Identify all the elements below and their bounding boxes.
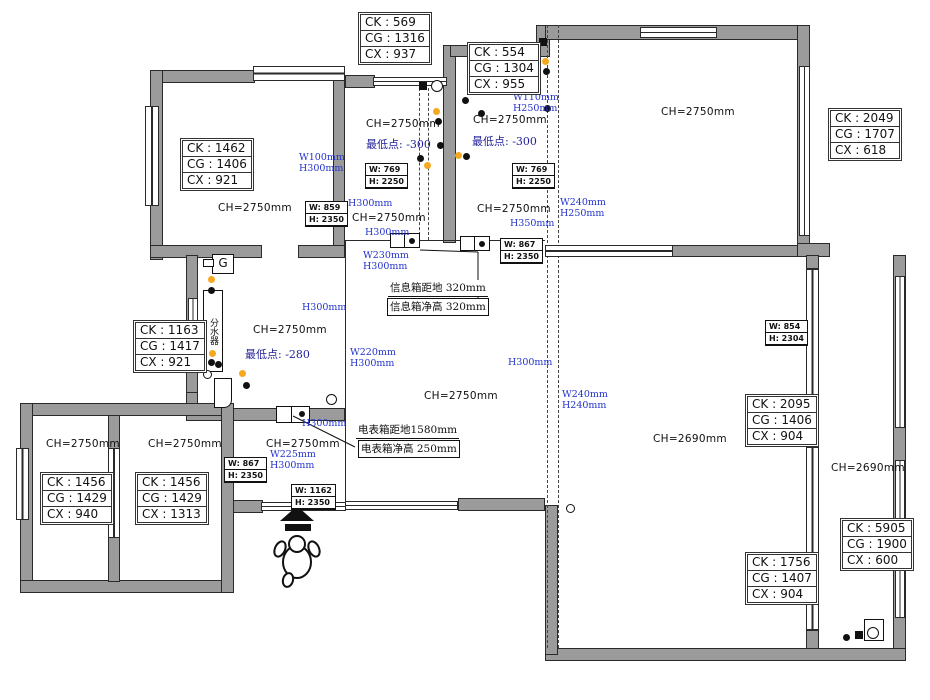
dimension-row: CK : 1462 [182, 140, 252, 157]
dimension-row: CX : 921 [182, 172, 252, 189]
opening-dimension-box: CK : 2049CG : 1707CX : 618 [828, 108, 902, 161]
spotlight-dot-orange [455, 152, 462, 159]
dimension-row: CX : 600 [842, 552, 912, 569]
wall-segment [671, 245, 810, 257]
ceiling-height-label: CH=2750mm [424, 390, 498, 402]
dimension-row: CX : 955 [469, 76, 539, 93]
dimension-row: CG : 1429 [42, 490, 112, 507]
window [640, 27, 717, 38]
dimension-row: CG : 1429 [137, 490, 207, 507]
window [545, 245, 673, 257]
dimension-row: CX : 1313 [137, 506, 207, 523]
floor-plan: 分水器 G /* ---------- data binding -------… [0, 0, 930, 700]
opening-dimension-box: CK : 5905CG : 1900CX : 600 [840, 518, 914, 571]
dimension-row: CK : 569 [360, 14, 430, 31]
dimension-row: CK : 1756 [747, 554, 817, 571]
door-size-box: W: 769H: 2250 [512, 163, 555, 189]
dimension-row: CX : 618 [830, 142, 900, 159]
spotlight-dot-black [208, 359, 215, 366]
pipe-dimension-label: W240mmH250mm [560, 197, 606, 219]
dimension-row: CK : 1456 [137, 474, 207, 491]
window [145, 106, 159, 206]
socket-square-symbol [419, 82, 427, 90]
window [345, 501, 458, 510]
window [799, 66, 810, 236]
pipe-dimension-label: H300mm [302, 302, 346, 313]
wall-segment [150, 70, 255, 83]
ceiling-height-label: CH=2750mm [253, 324, 327, 336]
opening-dimension-box: CK : 1163CG : 1417CX : 921 [133, 320, 207, 373]
spotlight-dot-orange [239, 370, 246, 377]
opening-dimension-box: CK : 1456CG : 1429CX : 1313 [135, 472, 209, 525]
opening-dimension-box: CK : 2095CG : 1406CX : 904 [745, 394, 819, 447]
wall-segment [298, 245, 345, 258]
door-size-row: H: 2350 [305, 213, 348, 226]
door-size-row: H: 2304 [765, 332, 808, 345]
door-size-box: W: 867H: 2350 [224, 457, 267, 483]
pipe-dimension-label: H300mm [348, 198, 392, 209]
pipe-dimension-label: W240mmH240mm [562, 389, 608, 411]
door-size-box: W: 854H: 2304 [765, 320, 808, 346]
dimension-row: CG : 1707 [830, 126, 900, 143]
dimension-row: CK : 1163 [135, 322, 205, 339]
circle-fixture-symbol [326, 394, 337, 405]
dimension-row: CG : 1316 [360, 30, 430, 47]
dimension-row: CX : 904 [747, 586, 817, 603]
opening-dimension-box: CK : 569CG : 1316CX : 937 [358, 12, 432, 65]
opening-dimension-box: CK : 1456CG : 1429CX : 940 [40, 472, 114, 525]
dimension-row: CK : 2049 [830, 110, 900, 127]
ceiling-height-label: CH=2690mm [831, 462, 905, 474]
dimension-row: CK : 2095 [747, 396, 817, 413]
annotation-note: 信息箱净高 320mm [387, 298, 489, 316]
door-size-row: H: 2350 [291, 496, 336, 509]
wall-segment [345, 75, 375, 88]
dimension-row: CK : 1456 [42, 474, 112, 491]
spotlight-dot-black [437, 142, 444, 149]
window [253, 66, 345, 81]
entrance-arrow-bar [285, 524, 311, 531]
annotation-note: 信息箱距地 320mm [388, 280, 488, 297]
circle-fixture-symbol [566, 504, 575, 513]
spotlight-dot-orange [424, 162, 431, 169]
ceiling-height-label: CH=2750mm [661, 106, 735, 118]
pipe-dimension-label: W220mmH300mm [350, 347, 396, 369]
spotlight-dot-black [208, 287, 215, 294]
door-size-box: W: 867H: 2350 [500, 238, 543, 264]
socket-square-symbol [855, 631, 863, 639]
door-size-row: H: 2350 [224, 469, 267, 482]
ceiling-height-label: CH=2750mm [366, 118, 440, 130]
pipe-dimension-label: W100mmH300mm [299, 152, 345, 174]
pipe-dimension-label: H350mm [510, 218, 554, 229]
dimension-row: CX : 940 [42, 506, 112, 523]
spotlight-dot-orange [208, 276, 215, 283]
ceiling-height-label: CH=2750mm [473, 114, 547, 126]
dimension-row: CG : 1407 [747, 570, 817, 587]
annotation-note: 电表箱净高 250mm [358, 440, 460, 458]
door-size-row: H: 2350 [500, 250, 543, 263]
pipe-dimension-label: H300mm [302, 418, 346, 429]
ceiling-height-label: CH=2690mm [653, 433, 727, 445]
ceiling-height-label: CH=2750mm [148, 438, 222, 450]
spotlight-dot-black [543, 68, 550, 75]
pipe-dimension-label: H300mm [508, 357, 552, 368]
person-icon [272, 536, 322, 588]
pipe-dimension-label: W230mmH300mm [363, 250, 409, 272]
ceiling-height-label: CH=2750mm [46, 438, 120, 450]
lowest-point-label: 最低点: -300 [366, 136, 431, 152]
wall-segment [233, 500, 263, 513]
dimension-row: CG : 1304 [469, 60, 539, 77]
ceiling-height-label: CH=2750mm [218, 202, 292, 214]
pipe-dimension-label: W225mmH300mm [270, 449, 316, 471]
spotlight-dot-orange [433, 108, 440, 115]
wall-segment [20, 403, 233, 416]
dimension-row: CG : 1406 [182, 156, 252, 173]
spotlight-dot-orange [542, 58, 549, 65]
opening-dimension-box: CK : 1462CG : 1406CX : 921 [180, 138, 254, 191]
annotation-note: 电表箱距地1580mm [356, 422, 459, 439]
opening-dimension-box: CK : 1756CG : 1407CX : 904 [745, 552, 819, 605]
ceiling-height-label: CH=2750mm [477, 203, 551, 215]
circle-fixture-symbol [431, 80, 443, 92]
door-size-box: W: 769H: 2250 [365, 163, 408, 189]
dimension-row: CG : 1406 [747, 412, 817, 429]
wall-segment [806, 255, 819, 269]
wall-segment [221, 403, 234, 593]
door-size-row: H: 2250 [512, 175, 555, 188]
dimension-row: CX : 904 [747, 428, 817, 445]
partition-line [345, 240, 346, 505]
pipe-dimension-label: W110mmH250mm [513, 92, 559, 114]
wall-segment [806, 630, 819, 650]
door-size-box: W: 859H: 2350 [305, 201, 348, 227]
dimension-row: CX : 937 [360, 46, 430, 63]
wall-segment [443, 45, 456, 243]
dimension-row: CG : 1417 [135, 338, 205, 355]
opening-dimension-box: CK : 554CG : 1304CX : 955 [467, 42, 541, 95]
door-size-row: H: 2250 [365, 175, 408, 188]
lowest-point-label: 最低点: -300 [472, 133, 537, 149]
pipe-dimension-label: H300mm [365, 227, 409, 238]
door-size-row: W: 1162 [291, 484, 336, 497]
kitchen-sink [214, 378, 232, 408]
dimension-row: CG : 1900 [842, 536, 912, 553]
spotlight-dot-black [462, 97, 469, 104]
wall-segment [458, 498, 545, 511]
wall-segment [20, 580, 233, 593]
dimension-row: CX : 921 [135, 354, 205, 371]
window [895, 276, 905, 428]
dashed-boundary-line [558, 25, 559, 648]
dashed-boundary-line [547, 25, 548, 648]
window [16, 448, 29, 520]
ceiling-height-label: CH=2750mm [352, 212, 426, 224]
wall-segment [150, 245, 262, 258]
switch-box-label: G [212, 254, 234, 274]
door-frame-symbol [460, 236, 490, 251]
spotlight-dot-black [215, 361, 222, 368]
door-size-box: W: 1162H: 2350 [291, 484, 336, 510]
meter-cabinet-circle [867, 627, 879, 639]
spotlight-dot-orange [209, 350, 216, 357]
spotlight-dot-black [843, 634, 850, 641]
lowest-point-label: 最低点: -280 [245, 346, 310, 362]
dimension-row: CK : 5905 [842, 520, 912, 537]
spotlight-dot-black [243, 382, 250, 389]
spotlight-dot-black [417, 155, 424, 162]
spotlight-dot-black [463, 153, 470, 160]
switch-box-tab [203, 259, 214, 267]
dimension-row: CK : 554 [469, 44, 539, 61]
wall-segment [545, 648, 906, 661]
